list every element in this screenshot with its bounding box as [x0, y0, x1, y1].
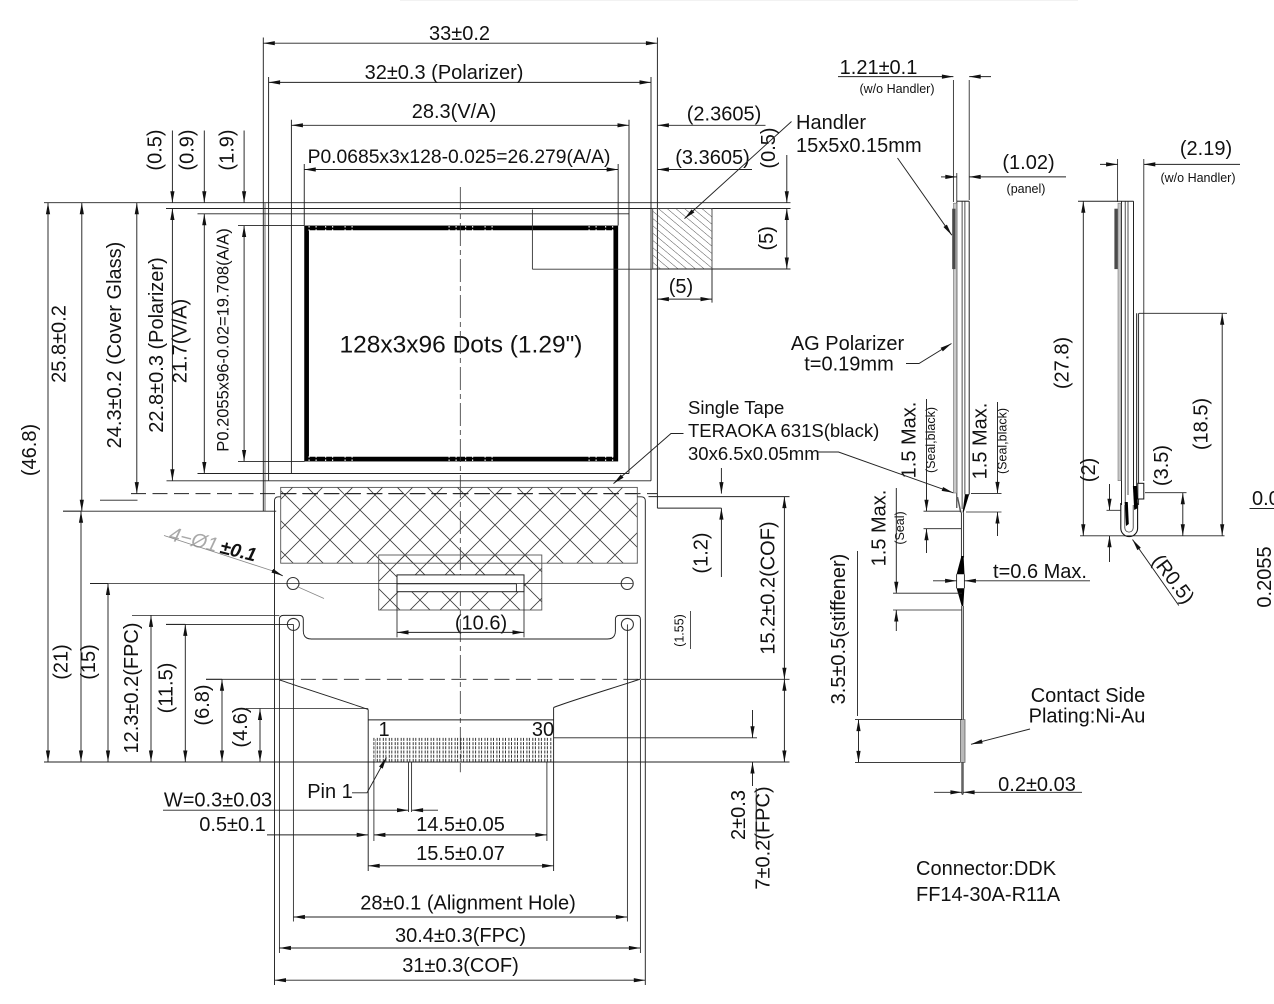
- svg-text:(1.02): (1.02): [1002, 152, 1054, 174]
- svg-text:1.5 Max.: 1.5 Max.: [868, 490, 890, 567]
- svg-text:(11.5): (11.5): [156, 663, 178, 714]
- svg-text:P0.0685x3x128-0.025=26.279(A/A: P0.0685x3x128-0.025=26.279(A/A): [308, 147, 611, 168]
- svg-text:(2): (2): [1078, 458, 1100, 482]
- svg-text:2±0.3: 2±0.3: [728, 790, 750, 840]
- svg-text:(10.6): (10.6): [455, 613, 507, 635]
- svg-text:30.4±0.3(FPC): 30.4±0.3(FPC): [395, 925, 526, 947]
- svg-text:(15): (15): [78, 644, 100, 680]
- svg-text:(1.2): (1.2): [691, 532, 713, 573]
- svg-text:33±0.2: 33±0.2: [429, 23, 490, 45]
- svg-text:3.5±0.5(stiffener): 3.5±0.5(stiffener): [828, 554, 850, 705]
- svg-text:14.5±0.05: 14.5±0.05: [416, 814, 505, 836]
- svg-text:(1.55): (1.55): [673, 614, 687, 647]
- svg-text:(4.6): (4.6): [230, 706, 252, 747]
- svg-text:(w/o Handler): (w/o Handler): [1160, 171, 1235, 185]
- svg-text:25.8±0.2: 25.8±0.2: [49, 305, 71, 383]
- svg-text:t=0.19mm: t=0.19mm: [804, 354, 893, 376]
- svg-text:15.5±0.07: 15.5±0.07: [416, 843, 505, 865]
- svg-text:(6.8): (6.8): [192, 684, 214, 725]
- svg-text:(Seal,black): (Seal,black): [924, 407, 938, 473]
- svg-text:1.5 Max.: 1.5 Max.: [899, 402, 921, 479]
- svg-text:32±0.3 (Polarizer): 32±0.3 (Polarizer): [365, 62, 524, 84]
- svg-text:AG Polarizer: AG Polarizer: [791, 333, 905, 355]
- svg-text:(Seal): (Seal): [893, 511, 907, 544]
- svg-text:(0.5): (0.5): [758, 127, 780, 168]
- svg-text:30x6.5x0.05mm: 30x6.5x0.05mm: [688, 443, 820, 464]
- svg-text:1.5 Max.: 1.5 Max.: [970, 403, 992, 480]
- svg-text:(3.3605): (3.3605): [675, 147, 750, 169]
- svg-text:FF14-30A-R11A: FF14-30A-R11A: [916, 884, 1061, 906]
- svg-text:(0.5): (0.5): [145, 129, 167, 170]
- svg-text:(21): (21): [51, 644, 73, 680]
- svg-text:(5): (5): [669, 276, 693, 298]
- svg-text:0.2055: 0.2055: [1254, 546, 1274, 607]
- svg-text:15x5x0.15mm: 15x5x0.15mm: [796, 135, 922, 157]
- svg-text:(2.19): (2.19): [1180, 138, 1232, 160]
- svg-text:P0.2055x96-0.02=19.708(A/A): P0.2055x96-0.02=19.708(A/A): [215, 228, 233, 451]
- svg-text:28±0.1 (Alignment Hole): 28±0.1 (Alignment Hole): [360, 893, 576, 915]
- svg-text:15.2±0.2(COF): 15.2±0.2(COF): [758, 521, 780, 654]
- svg-text:24.3±0.2 (Cover Glass): 24.3±0.2 (Cover Glass): [104, 242, 126, 449]
- svg-text:12.3±0.2(FPC): 12.3±0.2(FPC): [121, 622, 143, 753]
- svg-text:(18.5): (18.5): [1191, 398, 1213, 450]
- svg-text:28.3(V/A): 28.3(V/A): [412, 101, 496, 123]
- svg-text:128x3x96 Dots (1.29"): 128x3x96 Dots (1.29"): [340, 332, 583, 359]
- svg-text:(5): (5): [756, 226, 778, 250]
- svg-text:(27.8): (27.8): [1052, 337, 1074, 389]
- svg-text:(3.5): (3.5): [1151, 445, 1173, 486]
- svg-text:31±0.3(COF): 31±0.3(COF): [402, 955, 519, 977]
- svg-text:W=0.3±0.03: W=0.3±0.03: [164, 790, 272, 812]
- svg-text:0.0: 0.0: [1252, 488, 1274, 510]
- svg-text:(panel): (panel): [1007, 182, 1046, 196]
- svg-text:30: 30: [532, 719, 554, 741]
- svg-text:Contact Side: Contact Side: [1031, 685, 1146, 707]
- svg-text:1: 1: [378, 719, 389, 741]
- svg-text:Single Tape: Single Tape: [688, 397, 784, 418]
- svg-text:Handler: Handler: [796, 112, 866, 134]
- svg-text:0.5±0.1: 0.5±0.1: [199, 814, 266, 836]
- svg-text:t=0.6 Max.: t=0.6 Max.: [993, 561, 1087, 583]
- svg-text:(w/o Handler): (w/o Handler): [859, 82, 934, 96]
- svg-text:TERAOKA 631S(black): TERAOKA 631S(black): [688, 420, 879, 441]
- svg-text:(46.8): (46.8): [19, 424, 41, 476]
- svg-text:Plating:Ni-Au: Plating:Ni-Au: [1029, 706, 1146, 728]
- svg-text:(1.9): (1.9): [216, 129, 238, 170]
- svg-text:Pin 1: Pin 1: [307, 781, 353, 803]
- svg-text:Connector:DDK: Connector:DDK: [916, 858, 1057, 880]
- svg-text:21.7(V/A): 21.7(V/A): [170, 299, 192, 383]
- svg-text:(2.3605): (2.3605): [687, 104, 762, 126]
- svg-text:1.21±0.1: 1.21±0.1: [840, 57, 918, 79]
- svg-text:(0.9): (0.9): [177, 129, 199, 170]
- svg-text:22.8±0.3 (Polarizer): 22.8±0.3 (Polarizer): [146, 257, 168, 433]
